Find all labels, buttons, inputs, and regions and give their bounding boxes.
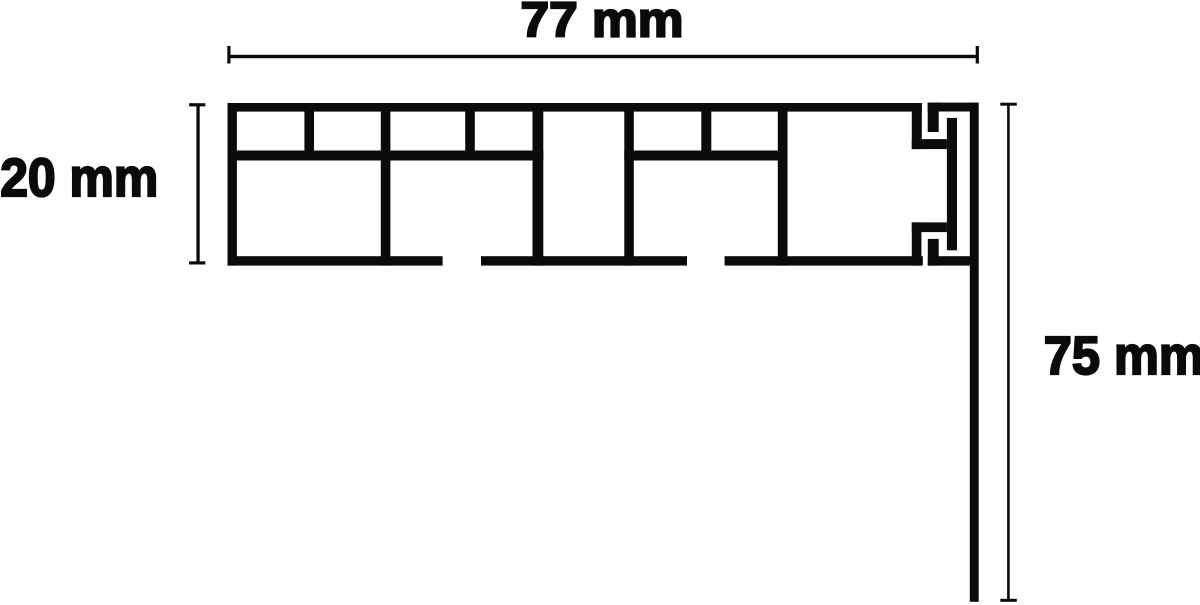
svg-text:20 mm: 20 mm [0, 148, 158, 208]
svg-text:75 mm: 75 mm [1044, 326, 1200, 386]
svg-text:77 mm: 77 mm [521, 0, 684, 48]
